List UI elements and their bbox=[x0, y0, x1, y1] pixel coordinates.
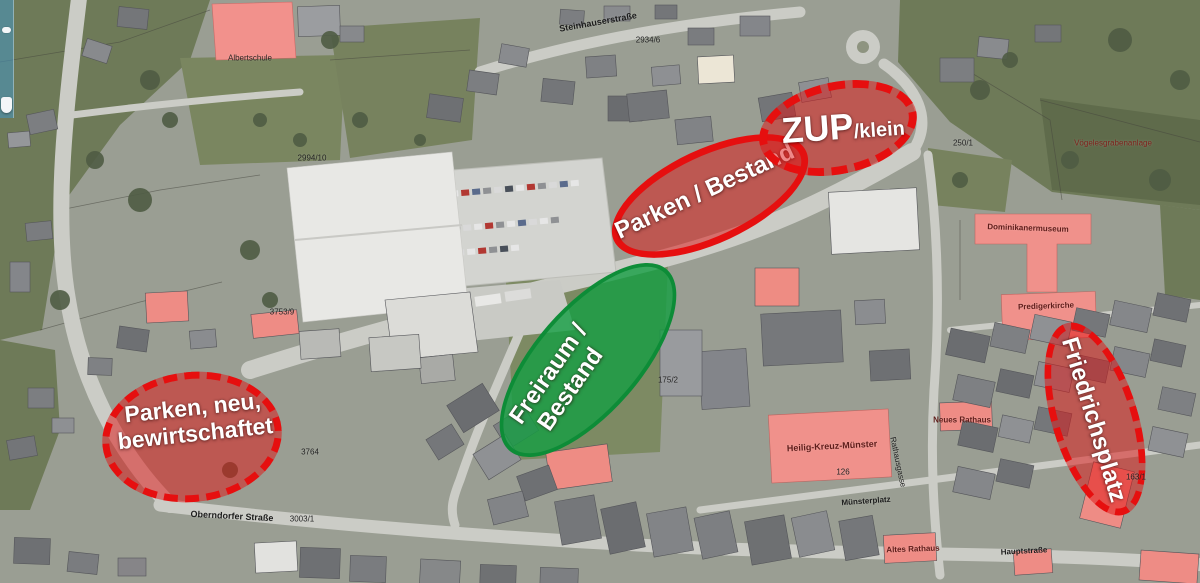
map-viewport: Parken, neu,bewirtschaftetParken / Besta… bbox=[0, 0, 1200, 583]
map-label: 3764 bbox=[301, 448, 319, 457]
map-label: 2994/10 bbox=[298, 154, 327, 163]
annotation-overlay: Parken, neu,bewirtschaftetParken / Besta… bbox=[0, 0, 1200, 583]
map-label: Predigerkirche bbox=[1018, 301, 1074, 312]
map-label: Heilig-Kreuz-Münster bbox=[787, 439, 878, 454]
map-label: Rathausgasse bbox=[888, 436, 907, 488]
map-label: 163/1 bbox=[1126, 473, 1146, 482]
map-label: Neues Rathaus bbox=[933, 416, 991, 425]
map-label: Münsterplatz bbox=[841, 495, 891, 507]
map-label: Steinhauserstraße bbox=[558, 10, 637, 33]
zoom-slider-thumb[interactable] bbox=[1, 97, 12, 113]
map-label: Altes Rathaus bbox=[886, 544, 940, 555]
map-zoom-slider[interactable] bbox=[0, 0, 14, 118]
zoom-slider-track-mark[interactable] bbox=[2, 27, 11, 33]
map-label: 3753/9 bbox=[270, 308, 294, 317]
map-label: 3003/1 bbox=[290, 515, 314, 524]
map-label: Vögelesgrabenanlage bbox=[1074, 139, 1152, 148]
map-label: Oberndorfer Straße bbox=[190, 509, 273, 523]
map-label: 175/2 bbox=[658, 376, 678, 385]
map-label: Dominikanermuseum bbox=[987, 222, 1069, 234]
map-label: Hauptstraße bbox=[1000, 545, 1047, 556]
map-label: 126 bbox=[836, 468, 849, 477]
annotation-label-zup-klein: ZUP/klein bbox=[780, 103, 906, 152]
map-label: Albertschule bbox=[228, 54, 272, 63]
map-label: 2934/6 bbox=[636, 36, 660, 45]
map-label: 250/1 bbox=[953, 139, 973, 148]
